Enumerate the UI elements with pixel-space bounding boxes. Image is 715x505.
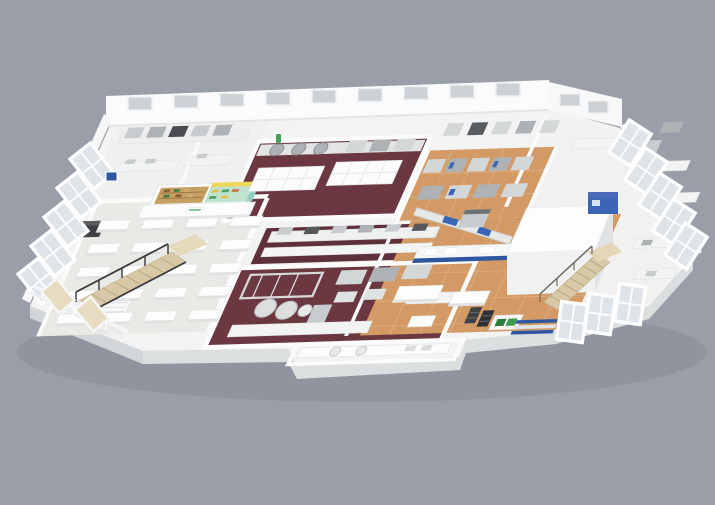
- render-stage: [0, 0, 715, 505]
- table: [228, 216, 263, 229]
- table: [86, 243, 121, 256]
- facility-3d-render: [0, 0, 715, 505]
- blue-pallet-stripes: [510, 319, 558, 335]
- table: [153, 287, 188, 300]
- wood-shelf-section: [154, 186, 209, 204]
- island-bench: [248, 166, 324, 191]
- blue-wall-sign: [106, 172, 117, 181]
- table: [96, 220, 131, 233]
- blue-analysis-machine: [588, 192, 618, 214]
- table: [218, 239, 253, 252]
- table: [197, 286, 232, 299]
- table: [184, 217, 219, 230]
- window-frame: [614, 283, 645, 324]
- table: [142, 311, 177, 324]
- table: [140, 219, 175, 232]
- window-frame: [584, 293, 615, 334]
- green-shelf-section: [204, 185, 253, 202]
- table: [186, 310, 221, 323]
- window-frame: [556, 301, 587, 342]
- island-bench: [326, 160, 402, 185]
- green-tank: [276, 134, 281, 143]
- shelf-logo-mark: [186, 207, 204, 213]
- table: [207, 263, 242, 276]
